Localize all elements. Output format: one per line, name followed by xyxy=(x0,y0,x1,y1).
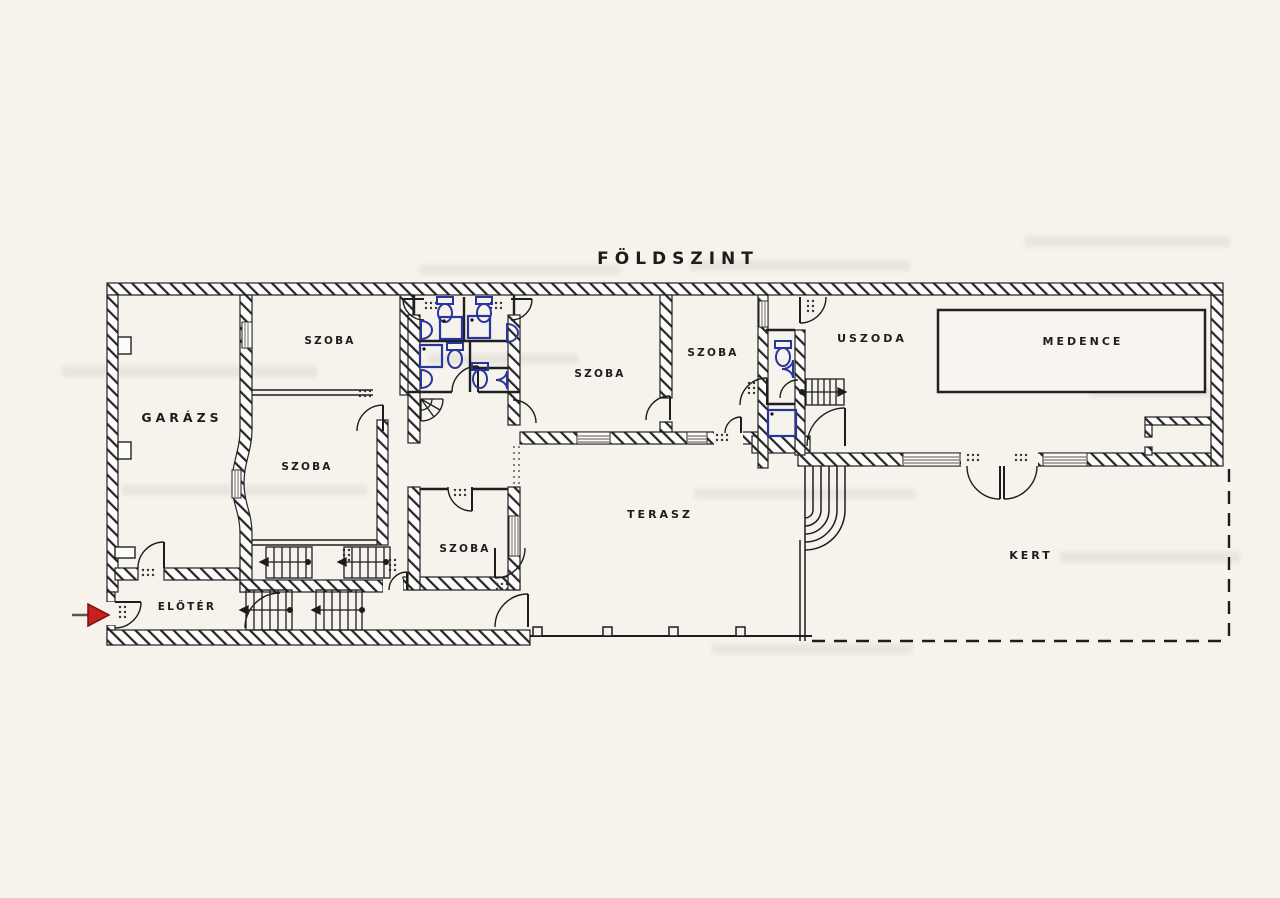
floorplan-drawing: FÖLDSZINT GARÁZS SZOBA SZOBA SZOBA SZOBA… xyxy=(0,0,1280,898)
window xyxy=(577,432,610,444)
room-label-szoba-3: SZOBA xyxy=(439,543,490,555)
pool-basin xyxy=(938,310,1205,392)
room-label-szoba-4: SZOBA xyxy=(574,368,625,380)
wall-szoba3-left xyxy=(408,487,420,590)
room-label-garazs: GARÁZS xyxy=(141,410,222,425)
wall-garage-bottom-b xyxy=(164,568,240,580)
window xyxy=(1043,453,1087,466)
wall-szoba4-5-divider xyxy=(660,295,672,398)
wall-garage-bottom-a xyxy=(115,568,138,580)
wall-bath-left xyxy=(408,315,420,443)
terrace-post xyxy=(669,627,678,636)
wall-bottom-left xyxy=(107,630,530,645)
wall-pool-nook-stub-a xyxy=(1145,425,1152,437)
room-label-szoba-5: SZOBA xyxy=(687,347,738,359)
wall-szoba2-right xyxy=(377,420,388,545)
wall-top xyxy=(107,283,1223,295)
room-label-terasz: TERASZ xyxy=(627,508,693,521)
window xyxy=(903,453,960,466)
window xyxy=(687,432,707,444)
plan-title: FÖLDSZINT xyxy=(597,247,759,269)
window xyxy=(242,322,252,348)
wall-right xyxy=(1211,295,1223,466)
window xyxy=(232,470,241,498)
room-label-uszoda: USZODA xyxy=(837,332,907,345)
wall-pool-nook-top xyxy=(1145,417,1211,425)
terrace-post xyxy=(736,627,745,636)
room-label-eloter: ELŐTÉR xyxy=(158,599,216,613)
window xyxy=(759,301,768,327)
terrace-post xyxy=(533,627,542,636)
terrace-post xyxy=(603,627,612,636)
paper-background xyxy=(0,0,1280,898)
room-label-kert: KERT xyxy=(1009,549,1053,562)
window xyxy=(509,516,520,556)
room-label-medence: MEDENCE xyxy=(1043,335,1124,348)
wall-pool-nook-stub-b xyxy=(1145,447,1152,455)
room-label-szoba-1: SZOBA xyxy=(304,335,355,347)
room-label-szoba-2: SZOBA xyxy=(281,461,332,473)
